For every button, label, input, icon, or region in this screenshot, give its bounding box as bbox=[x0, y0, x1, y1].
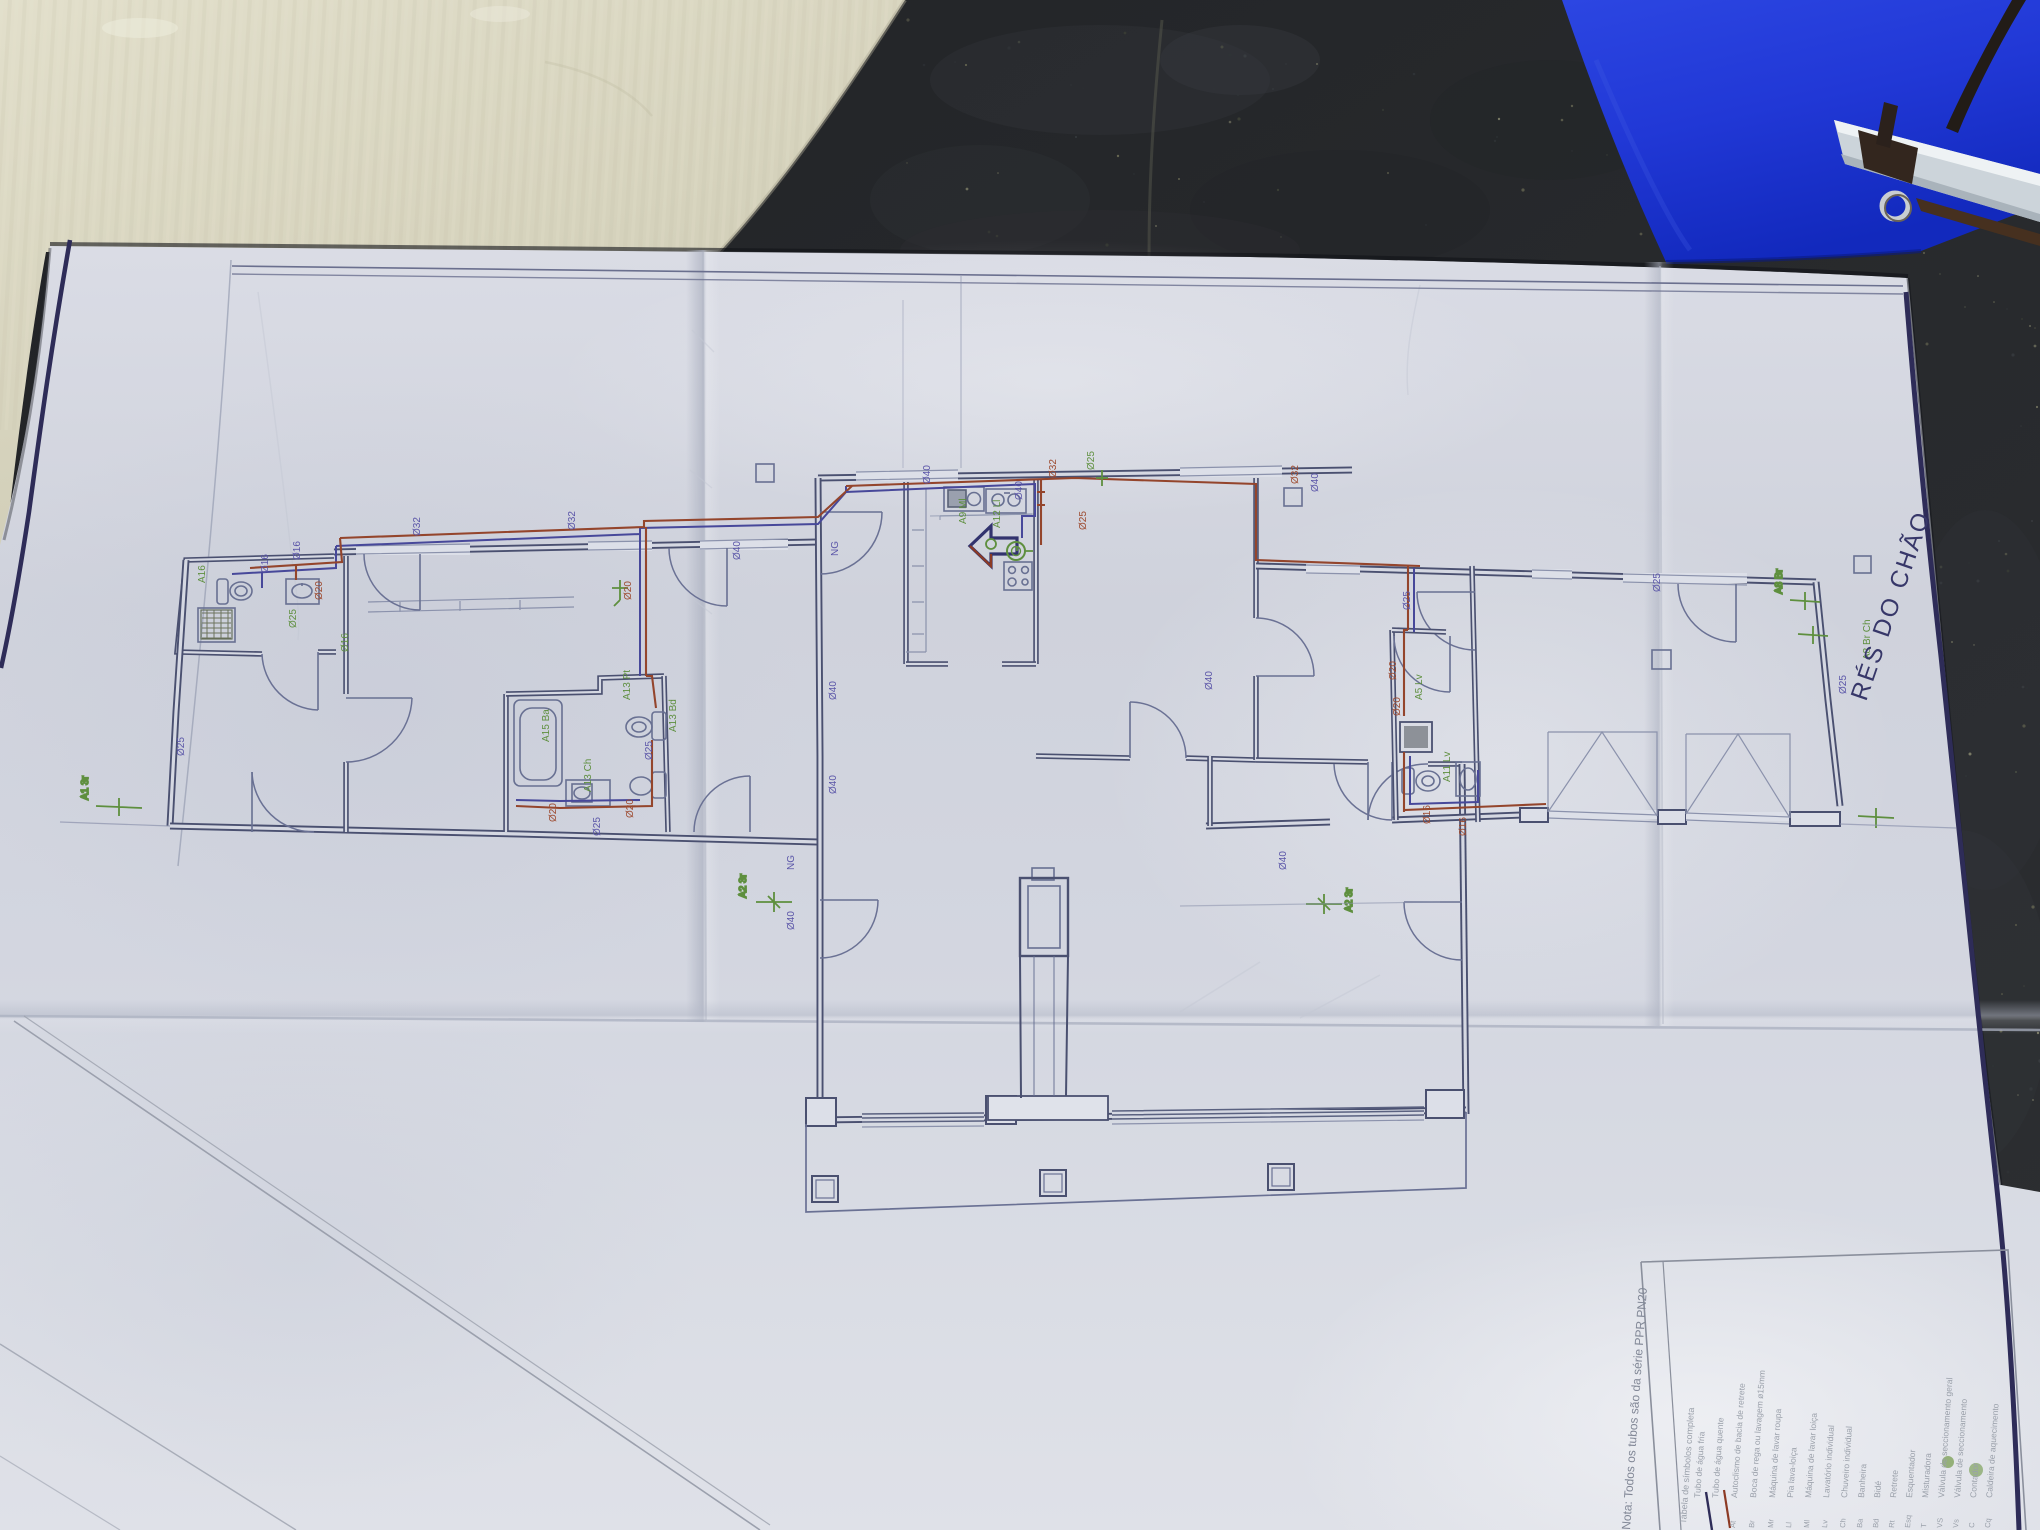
svg-text:NG: NG bbox=[786, 855, 797, 870]
svg-text:A11 Lv: A11 Lv bbox=[1442, 752, 1453, 782]
svg-text:Bd: Bd bbox=[1871, 1518, 1881, 1528]
svg-text:A13 Pt: A13 Pt bbox=[622, 670, 633, 700]
svg-text:Ø20: Ø20 bbox=[623, 581, 634, 600]
svg-text:Retrete: Retrete bbox=[1888, 1469, 1900, 1498]
svg-text:Ll: Ll bbox=[1784, 1521, 1793, 1528]
svg-text:Ø20: Ø20 bbox=[625, 799, 636, 818]
svg-text:Lv: Lv bbox=[1820, 1519, 1830, 1528]
svg-text:Ø20: Ø20 bbox=[1392, 697, 1403, 716]
svg-text:Ø40: Ø40 bbox=[828, 775, 839, 794]
svg-text:Cq: Cq bbox=[1983, 1518, 1993, 1528]
svg-text:Vs: Vs bbox=[1951, 1519, 1961, 1529]
svg-text:Esq: Esq bbox=[1903, 1515, 1913, 1529]
svg-text:Ø32: Ø32 bbox=[412, 517, 423, 536]
svg-text:Ba: Ba bbox=[1855, 1518, 1865, 1529]
svg-text:Ø40: Ø40 bbox=[786, 911, 797, 930]
svg-text:A9 Ml: A9 Ml bbox=[958, 498, 969, 524]
svg-text:Mr: Mr bbox=[1766, 1518, 1776, 1528]
svg-text:Ø16: Ø16 bbox=[260, 554, 271, 573]
svg-text:Ø40: Ø40 bbox=[1278, 851, 1289, 870]
svg-text:A13 Ch: A13 Ch bbox=[583, 759, 594, 792]
svg-text:VS: VS bbox=[1935, 1518, 1945, 1529]
svg-text:A13 Bd: A13 Bd bbox=[668, 699, 679, 732]
svg-text:Ø40: Ø40 bbox=[1204, 671, 1215, 690]
svg-text:Ø25: Ø25 bbox=[288, 609, 299, 628]
svg-text:Ø20: Ø20 bbox=[1388, 661, 1399, 680]
svg-text:A8 Br: A8 Br bbox=[1774, 568, 1785, 594]
svg-text:Ø40: Ø40 bbox=[1014, 481, 1025, 500]
svg-text:Ø20: Ø20 bbox=[548, 803, 559, 822]
svg-text:Ø40: Ø40 bbox=[922, 465, 933, 484]
svg-text:Ø25: Ø25 bbox=[1652, 573, 1663, 592]
svg-text:Ø40: Ø40 bbox=[732, 541, 743, 560]
svg-text:A2 3r: A2 3r bbox=[1344, 887, 1355, 912]
svg-text:A2 3r: A2 3r bbox=[738, 873, 749, 898]
svg-text:Ø40: Ø40 bbox=[828, 681, 839, 700]
svg-text:Ø40: Ø40 bbox=[1310, 473, 1321, 492]
svg-text:Ø25: Ø25 bbox=[1086, 451, 1097, 470]
svg-text:Ø25: Ø25 bbox=[1402, 591, 1413, 610]
svg-text:NG: NG bbox=[830, 541, 841, 556]
svg-text:Bidé: Bidé bbox=[1872, 1480, 1883, 1498]
svg-text:Ch: Ch bbox=[1838, 1518, 1848, 1528]
svg-text:Ø16: Ø16 bbox=[1458, 817, 1469, 836]
svg-text:Ø16: Ø16 bbox=[340, 633, 351, 652]
svg-text:Ø32: Ø32 bbox=[567, 511, 578, 530]
svg-text:Ø25: Ø25 bbox=[1078, 511, 1089, 530]
svg-text:Br: Br bbox=[1747, 1520, 1757, 1529]
svg-text:A5 Lv: A5 Lv bbox=[1414, 674, 1425, 700]
svg-text:Ø25: Ø25 bbox=[176, 737, 187, 756]
svg-text:Ø32: Ø32 bbox=[1048, 459, 1059, 478]
svg-text:Ml: Ml bbox=[1802, 1519, 1812, 1528]
svg-text:Ø25: Ø25 bbox=[592, 817, 603, 836]
svg-text:A1 3r: A1 3r bbox=[80, 775, 91, 800]
svg-text:A16: A16 bbox=[197, 565, 208, 583]
svg-text:Ø32: Ø32 bbox=[1290, 465, 1301, 484]
svg-text:A15 Ba: A15 Ba bbox=[541, 709, 552, 742]
svg-text:Ø16: Ø16 bbox=[1422, 805, 1433, 824]
svg-text:Ø16: Ø16 bbox=[292, 541, 303, 560]
svg-text:A12 Ll: A12 Ll bbox=[992, 500, 1003, 528]
svg-text:Ø25: Ø25 bbox=[644, 741, 655, 760]
svg-text:Ø20: Ø20 bbox=[314, 581, 325, 600]
